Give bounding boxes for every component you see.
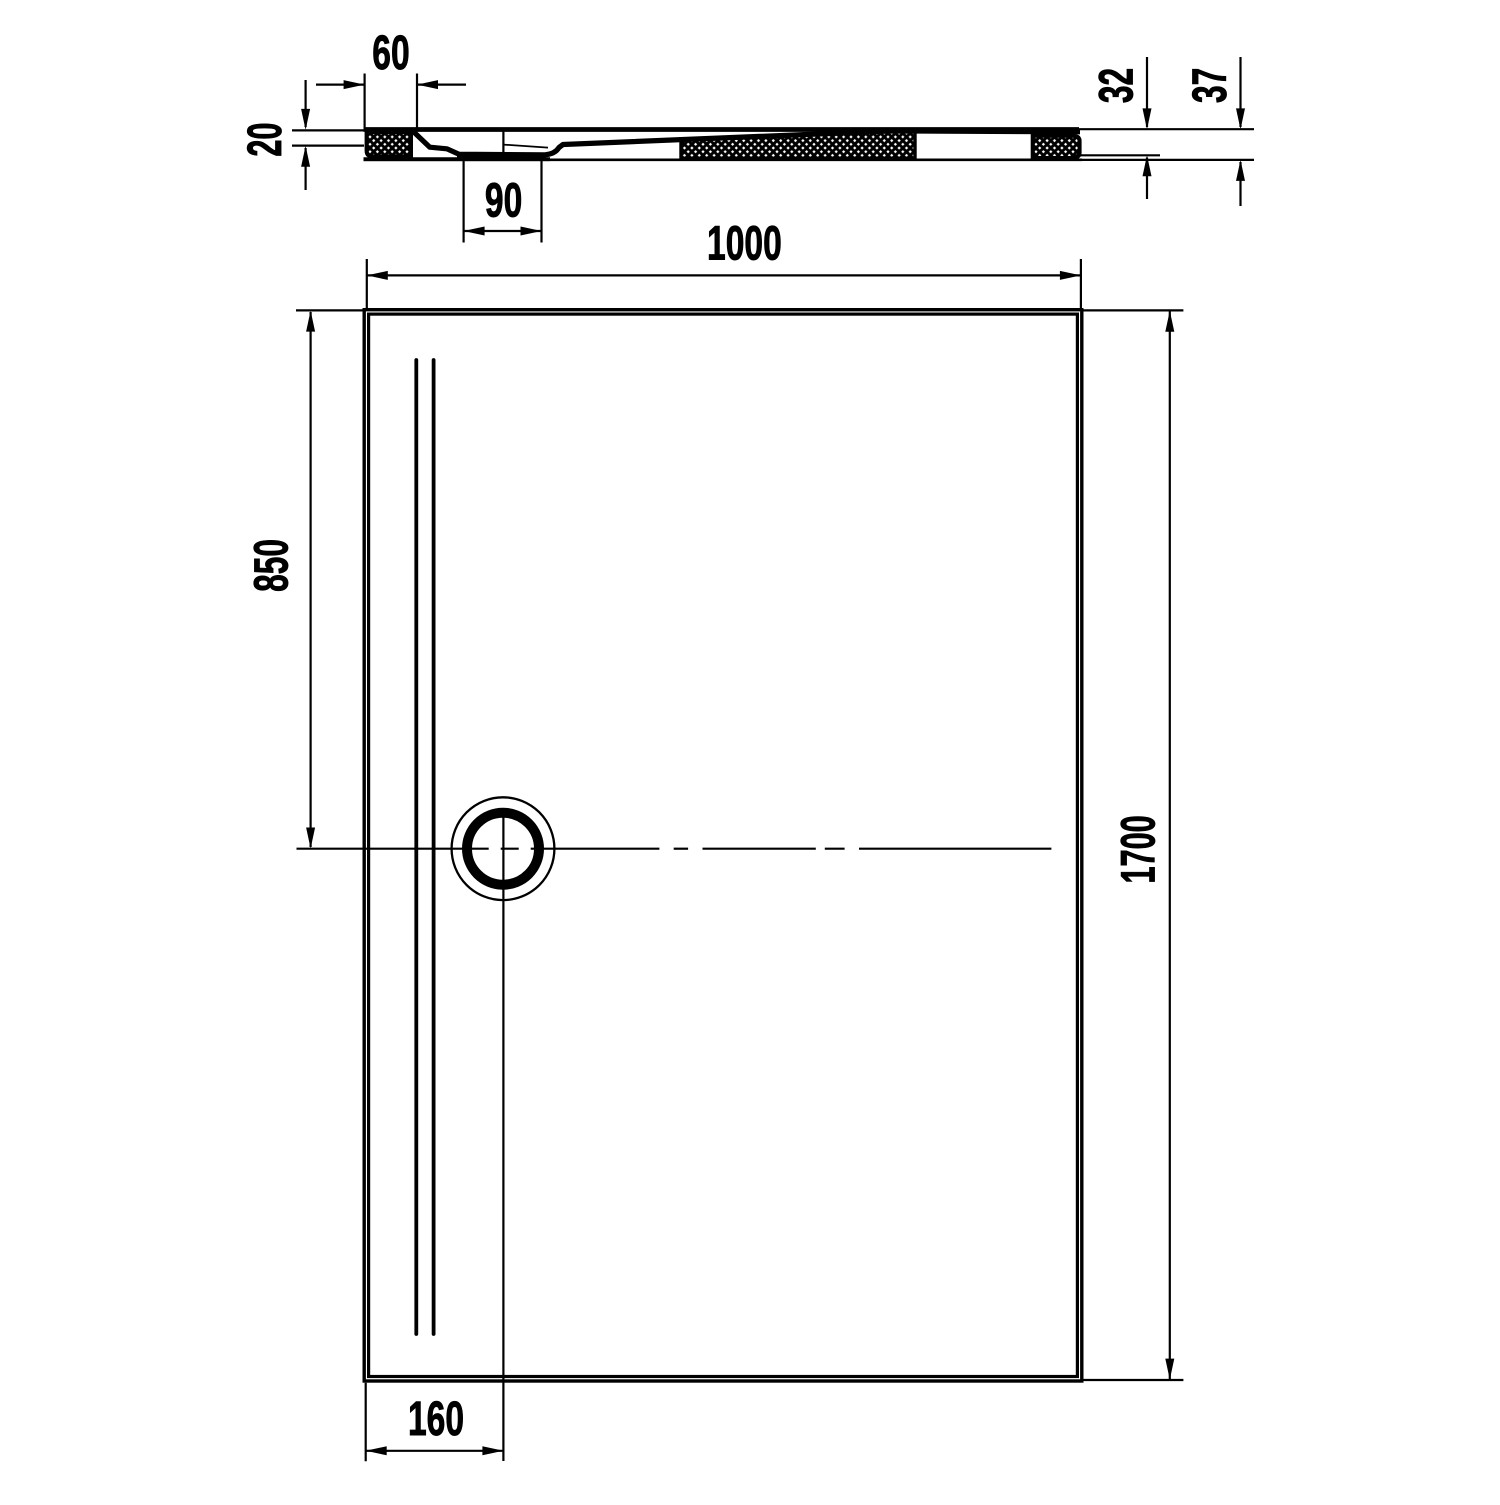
svg-text:1000: 1000 xyxy=(707,215,782,269)
svg-text:90: 90 xyxy=(485,172,522,226)
svg-text:850: 850 xyxy=(244,539,298,592)
svg-text:160: 160 xyxy=(408,1391,464,1445)
svg-text:1700: 1700 xyxy=(1111,815,1165,883)
svg-text:60: 60 xyxy=(372,25,409,79)
svg-text:32: 32 xyxy=(1089,68,1143,103)
svg-text:37: 37 xyxy=(1182,68,1236,103)
svg-text:20: 20 xyxy=(238,123,292,157)
